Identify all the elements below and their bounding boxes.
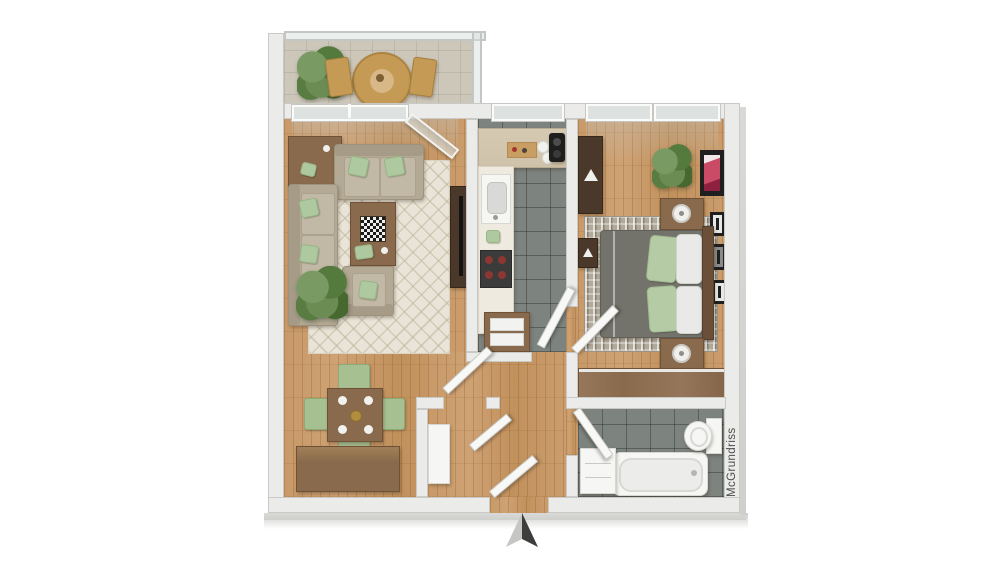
- sink-faucet: [493, 215, 498, 220]
- watermark-text: McGrundriss: [726, 407, 740, 497]
- bathtub: [612, 452, 708, 496]
- coffee-machine: [549, 133, 565, 162]
- hall-cabinet: [428, 424, 450, 484]
- kitchen-drawer-cabinet: [484, 312, 530, 352]
- outer-wall-bottom-left: [268, 497, 490, 513]
- wall-bedroom-bathroom: [566, 397, 726, 409]
- cutting-board: [507, 142, 537, 158]
- north-arrow-icon: [502, 513, 542, 549]
- wall-dining-jamb: [486, 397, 500, 409]
- toilet-seat: [690, 427, 708, 447]
- wall-bath-west: [566, 455, 578, 497]
- bedroom-art-pink: [700, 150, 724, 196]
- dining-table: [327, 388, 383, 442]
- sofa-pillow: [299, 244, 319, 264]
- wall-dining-stub: [416, 397, 444, 409]
- plate: [338, 396, 347, 405]
- bed-headboard: [702, 226, 714, 340]
- bed-pillow-white: [676, 286, 702, 334]
- burner: [498, 256, 506, 264]
- lamp-finial: [679, 351, 684, 356]
- wall-kitchen-west: [466, 119, 478, 352]
- kitchen-sink-unit: [481, 174, 511, 224]
- sofa-pillow: [298, 197, 319, 218]
- drawer: [490, 333, 524, 346]
- kitchen-herb: [486, 230, 500, 243]
- coffee-table: [350, 202, 396, 266]
- dresser-decor: [584, 169, 598, 181]
- plate: [338, 425, 347, 434]
- loveseat-pillow: [347, 155, 370, 178]
- loveseat: [334, 144, 424, 200]
- food-item: [512, 147, 517, 152]
- bedroom-wardrobe: [578, 368, 726, 398]
- sideboard-decor-white: [323, 145, 330, 152]
- outer-wall-left: [268, 33, 284, 513]
- cabinet-line: [585, 477, 611, 478]
- toilet-bowl: [684, 421, 712, 451]
- cabinet-line: [585, 463, 611, 464]
- bed-pillow-white: [676, 234, 702, 284]
- bedroom-window-1: [586, 104, 652, 121]
- north-arrow-right-wing: [522, 513, 538, 547]
- chessboard: [360, 216, 386, 242]
- loveseat-back: [335, 145, 423, 156]
- outer-wall-face-right: [740, 107, 746, 515]
- center-bowl: [350, 410, 362, 422]
- food-item: [522, 148, 527, 153]
- outer-wall-bottom-right: [548, 497, 740, 513]
- tv: [459, 196, 463, 276]
- bathtub-basin: [619, 458, 703, 492]
- wall-kitchen-bedroom: [566, 119, 578, 307]
- burner: [498, 271, 506, 279]
- bedroom-plant: [652, 144, 692, 192]
- coffee-machine-dial: [553, 150, 561, 158]
- duvet-fold: [613, 231, 615, 337]
- table-decor-white: [381, 247, 388, 254]
- nightstand-lamp-top: [672, 204, 691, 223]
- bathtub-drain: [691, 470, 697, 476]
- sideboard-decor-green: [300, 161, 318, 177]
- lamp-finial: [679, 211, 684, 216]
- balcony-chair-left: [324, 57, 353, 98]
- bedroom-dresser: [578, 136, 603, 214]
- bedroom-window-2: [654, 104, 720, 121]
- floor-plan-canvas: McGrundriss: [0, 0, 1000, 562]
- glass-wall-mullion: [348, 104, 351, 118]
- floor-plan: McGrundriss: [0, 0, 1000, 562]
- plate: [364, 425, 373, 434]
- table-centerpiece: [376, 74, 384, 82]
- armchair-pillow: [358, 280, 378, 300]
- bedroom-shelf: [578, 238, 598, 268]
- cooktop: [480, 250, 512, 288]
- entrance-threshold-floor: [490, 497, 548, 514]
- living-plant: [296, 266, 348, 324]
- nightstand-lamp-bottom: [672, 344, 691, 363]
- balcony-railing-top: [284, 31, 486, 41]
- north-arrow-left-wing: [506, 513, 522, 547]
- plate: [364, 396, 373, 405]
- art-canvas: [704, 155, 720, 191]
- shelf-decor: [583, 248, 593, 257]
- dining-chair-top: [338, 364, 370, 391]
- kitchen-window: [492, 104, 564, 121]
- burner: [485, 271, 493, 279]
- sink-basin: [487, 182, 507, 214]
- burner: [485, 256, 493, 264]
- table-decor-green: [354, 244, 374, 260]
- dining-sideboard: [296, 446, 400, 492]
- coffee-machine-dial: [553, 138, 561, 146]
- loveseat-pillow: [383, 155, 405, 177]
- armchair: [342, 266, 394, 316]
- drawer: [490, 318, 524, 331]
- wall-dining-hall: [416, 409, 428, 497]
- bed-pillow-green: [646, 285, 679, 333]
